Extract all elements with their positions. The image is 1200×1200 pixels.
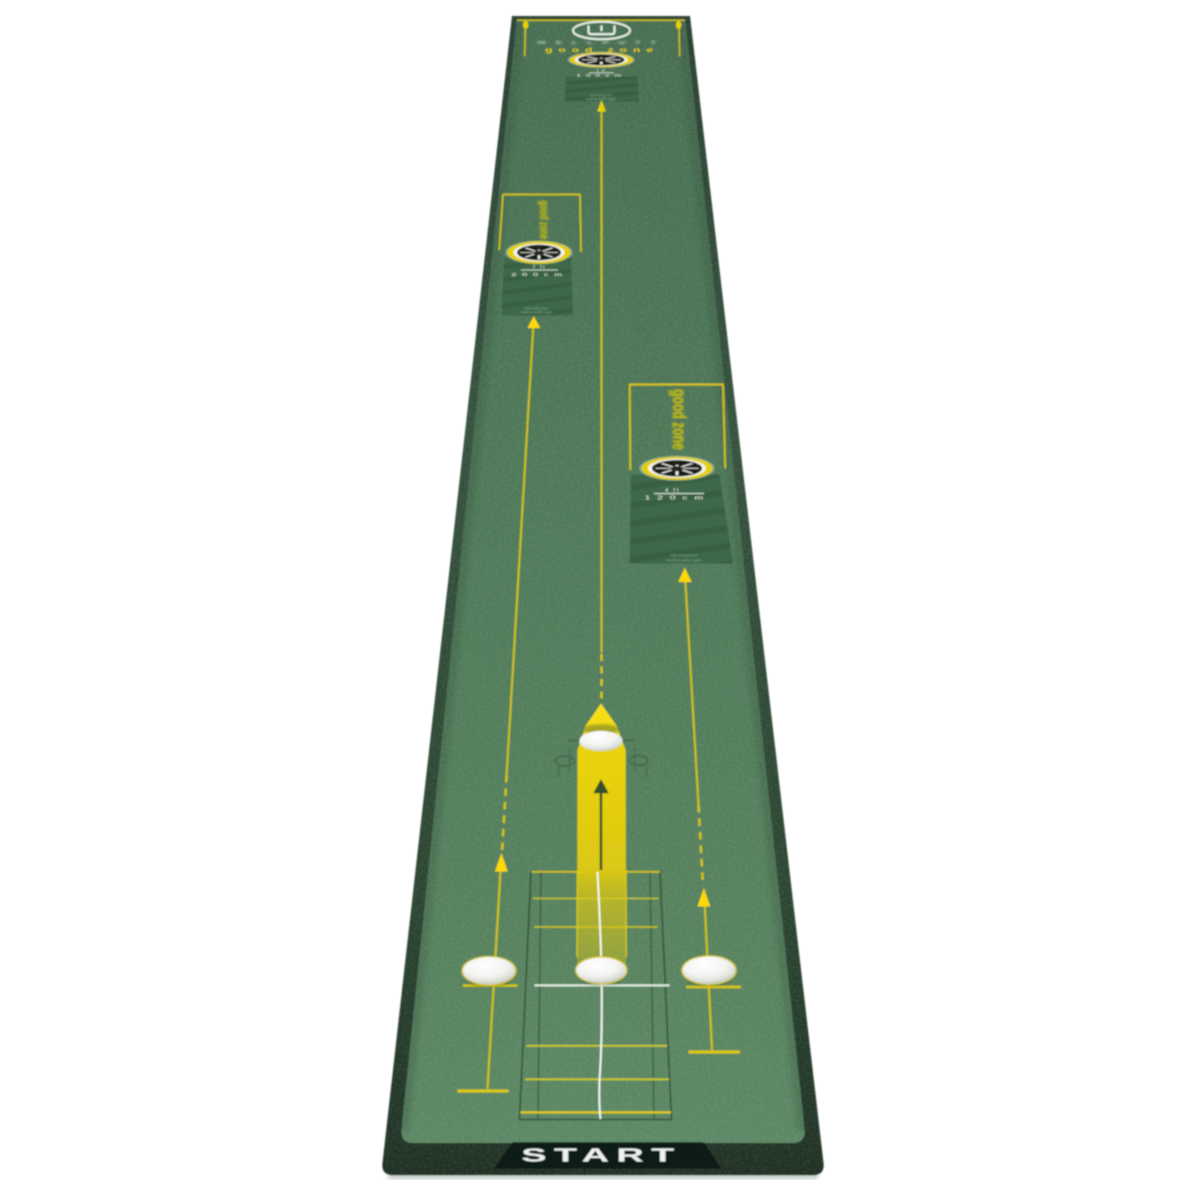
svg-text:ball ending here: ball ending here bbox=[670, 554, 697, 558]
svg-text:good zone: good zone bbox=[668, 389, 688, 450]
svg-text:must be putted again: must be putted again bbox=[586, 97, 616, 101]
svg-text:good zone: good zone bbox=[536, 201, 549, 240]
svg-text:1 m: 1 m bbox=[597, 69, 606, 73]
svg-text:WELLPUTT: WELLPUTT bbox=[537, 40, 665, 46]
svg-text:must be putted again: must be putted again bbox=[666, 558, 701, 562]
svg-text:200cm: 200cm bbox=[511, 271, 568, 277]
svg-text:120cm: 120cm bbox=[645, 495, 710, 501]
svg-text:4 ft: 4 ft bbox=[665, 488, 680, 494]
svg-text:must be putted again: must be putted again bbox=[521, 311, 553, 315]
svg-text:START: START bbox=[521, 1145, 681, 1165]
